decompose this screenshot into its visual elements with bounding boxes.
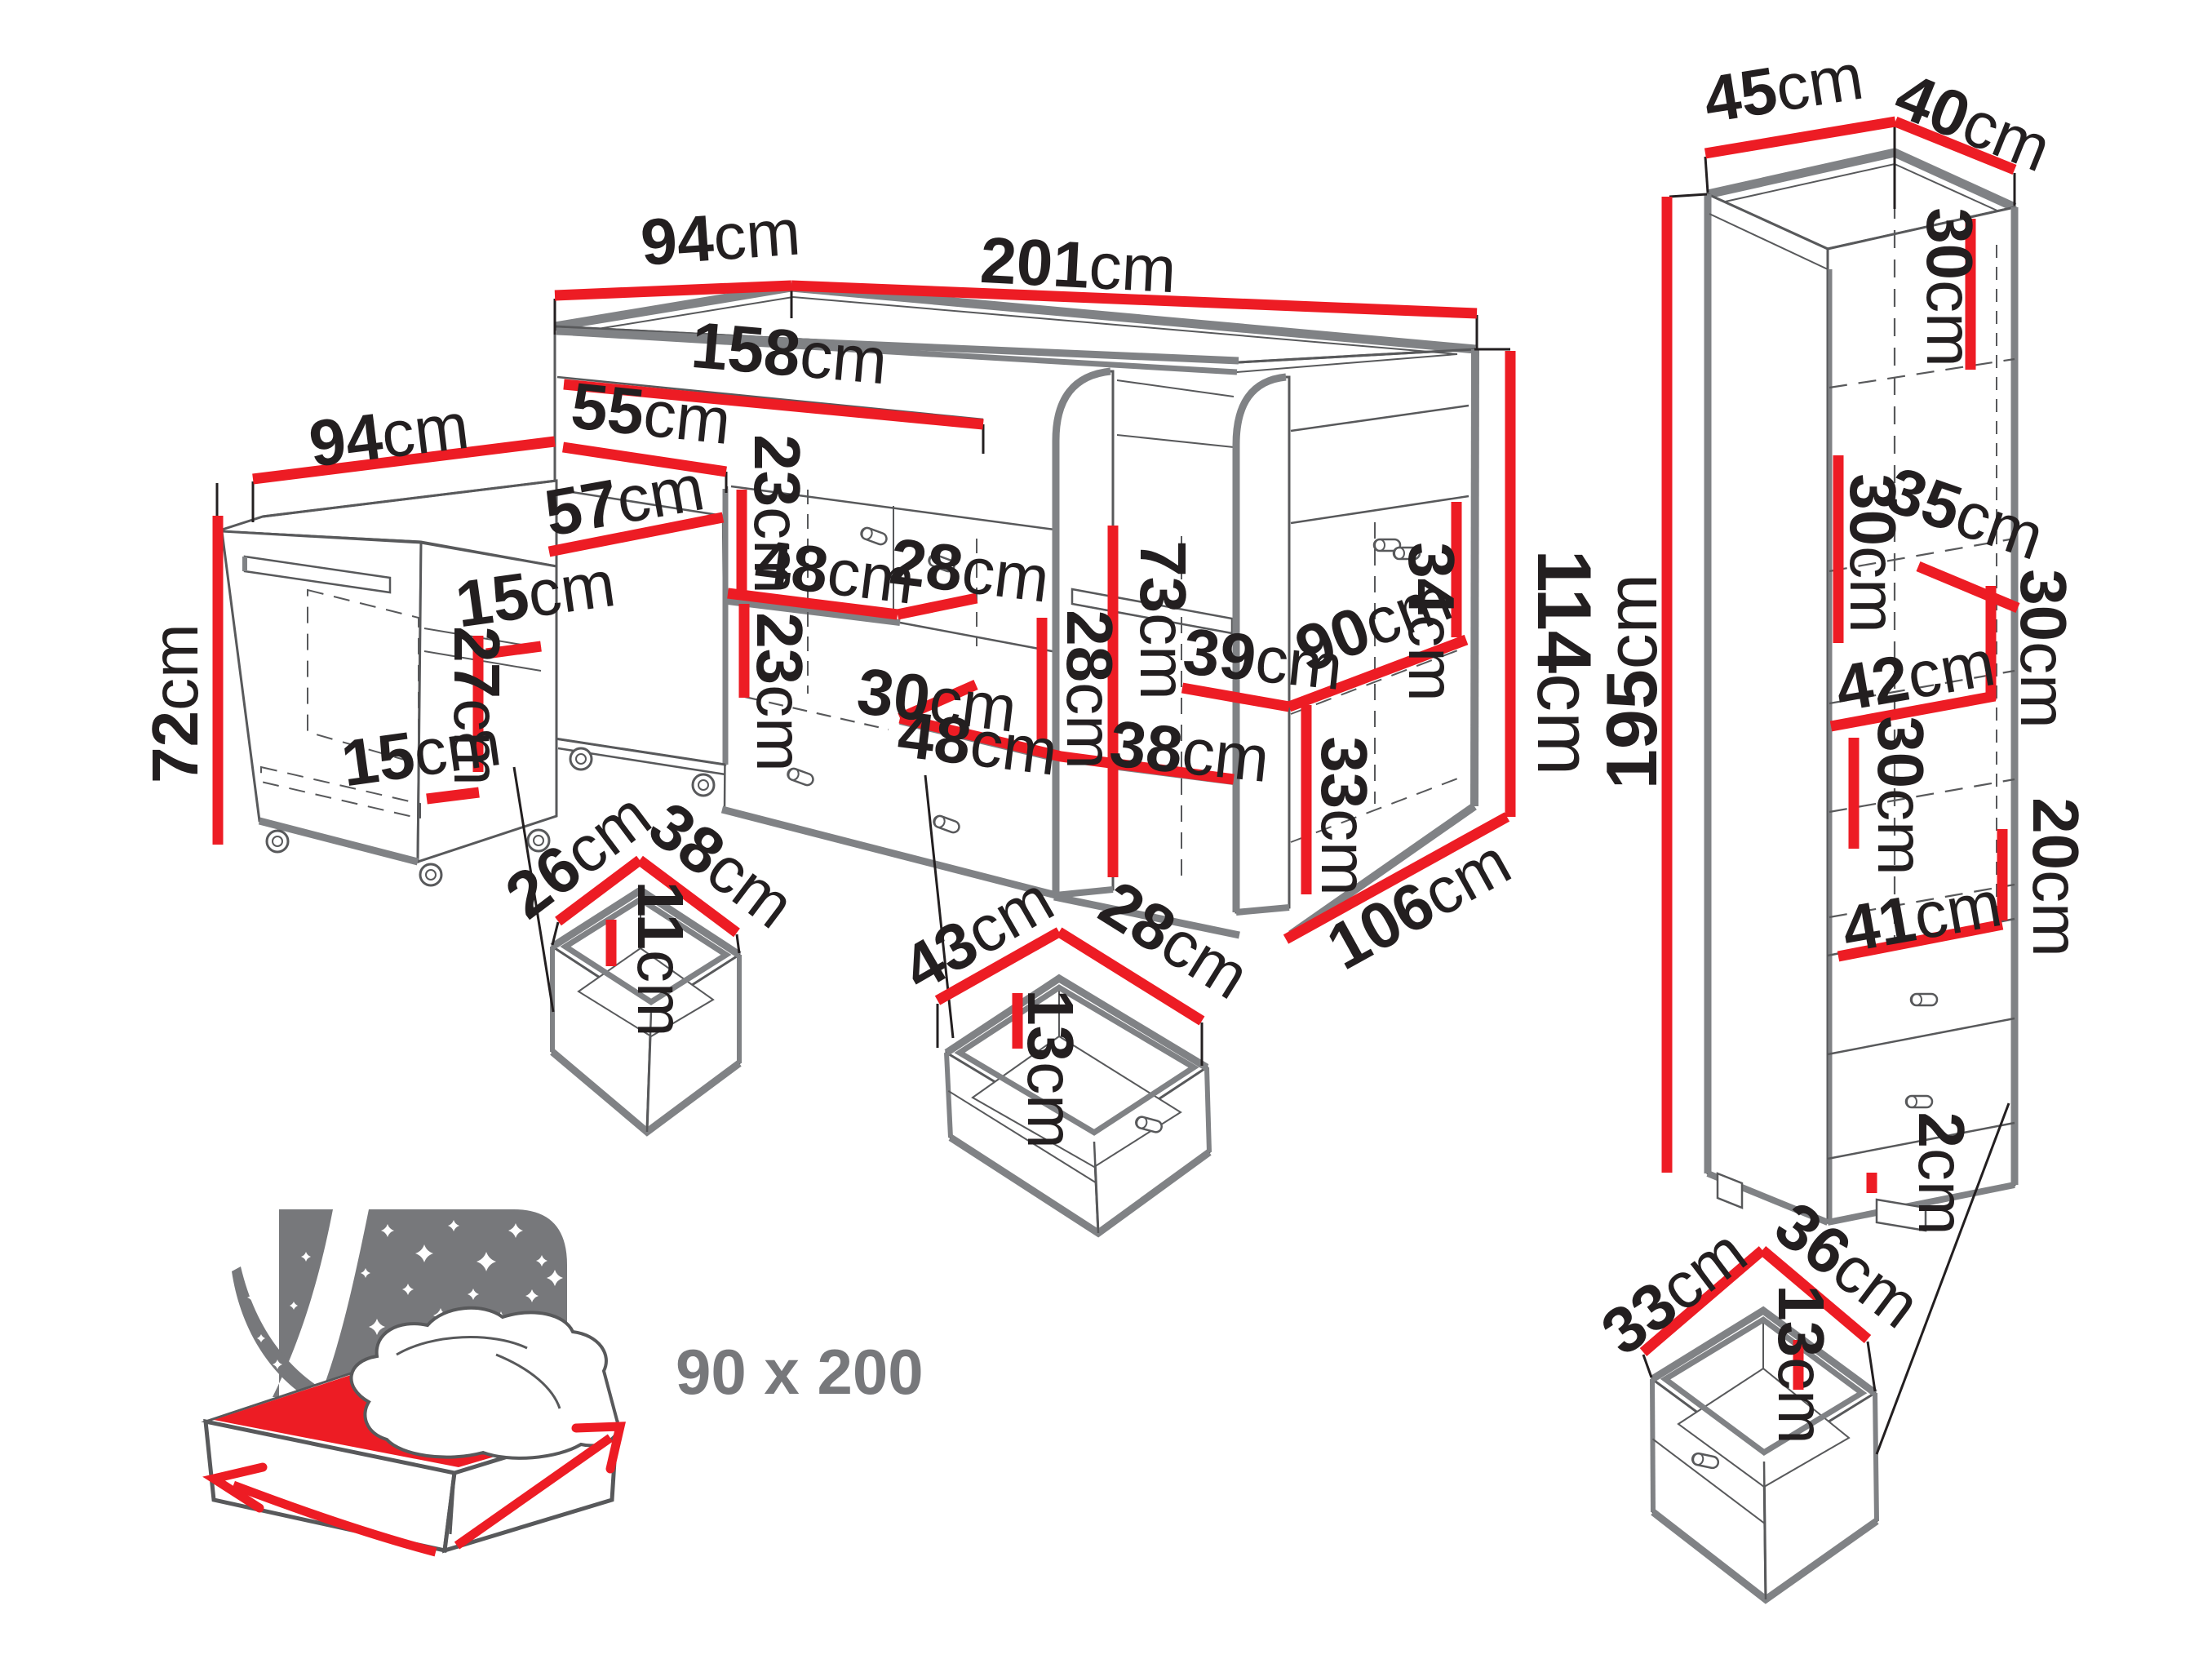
svg-text:11cm: 11cm (624, 881, 697, 1036)
svg-text:23cm: 23cm (743, 612, 816, 772)
svg-text:34cm: 34cm (1395, 542, 1468, 702)
svg-text:13cm: 13cm (1765, 1284, 1837, 1444)
svg-text:30cm: 30cm (1913, 207, 1986, 367)
svg-text:33cm: 33cm (1308, 736, 1381, 896)
svg-text:2cm: 2cm (1905, 1111, 1978, 1235)
svg-text:20cm: 20cm (2019, 797, 2092, 957)
svg-text:195cm: 195cm (1591, 574, 1672, 789)
svg-text:30cm: 30cm (1864, 716, 1937, 876)
svg-text:94cm: 94cm (638, 195, 802, 278)
svg-text:30cm: 30cm (2007, 569, 2080, 729)
svg-text:72cm: 72cm (139, 623, 211, 783)
svg-text:90 x 200: 90 x 200 (676, 1336, 924, 1408)
svg-text:13cm: 13cm (1014, 989, 1087, 1149)
svg-text:201cm: 201cm (978, 224, 1177, 306)
